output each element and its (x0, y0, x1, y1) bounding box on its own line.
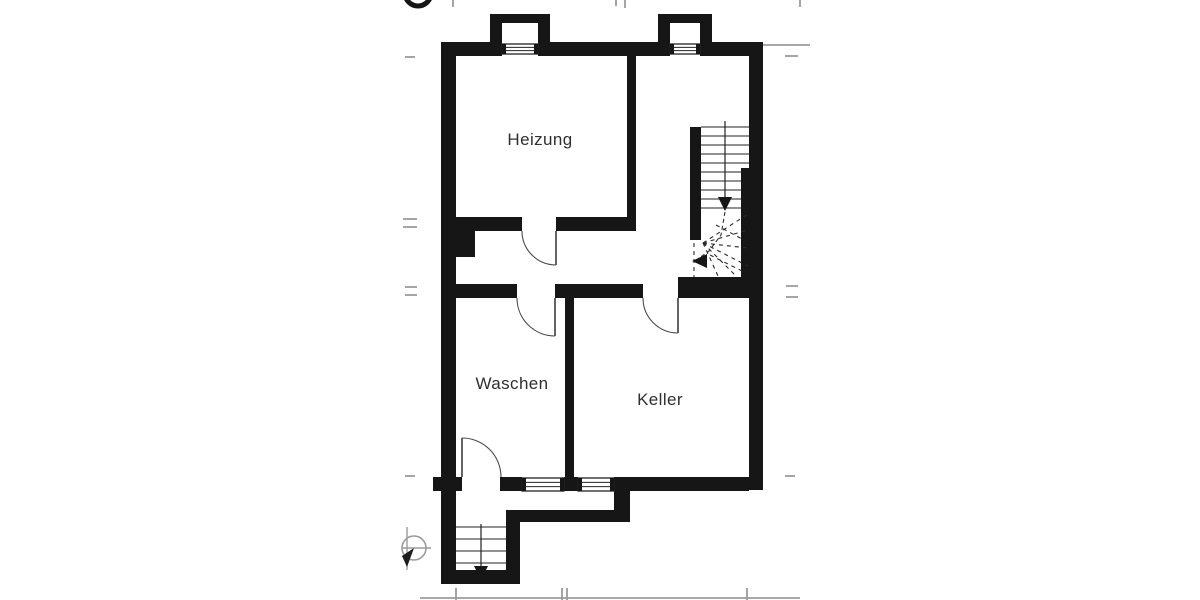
door-waschen (517, 298, 555, 336)
door-keller (643, 298, 678, 333)
window-symbol (502, 44, 538, 54)
floorplan-canvas: Heizung Waschen Keller (0, 0, 1200, 600)
room-label-heizung: Heizung (507, 130, 572, 150)
stair-down-arrow (718, 197, 732, 211)
room-label-keller: Keller (637, 390, 683, 410)
north-symbol (405, 0, 431, 6)
walls (433, 14, 763, 584)
window-symbols (502, 44, 700, 491)
door-waschen-exit (462, 438, 501, 477)
window-symbol (670, 44, 700, 54)
room-label-waschen: Waschen (475, 374, 548, 394)
floorplan-drawing (0, 0, 1200, 600)
window-symbol (522, 478, 564, 491)
door-heizung (522, 231, 556, 265)
stair-exit-arrow (692, 254, 707, 268)
window-symbol (578, 478, 614, 491)
